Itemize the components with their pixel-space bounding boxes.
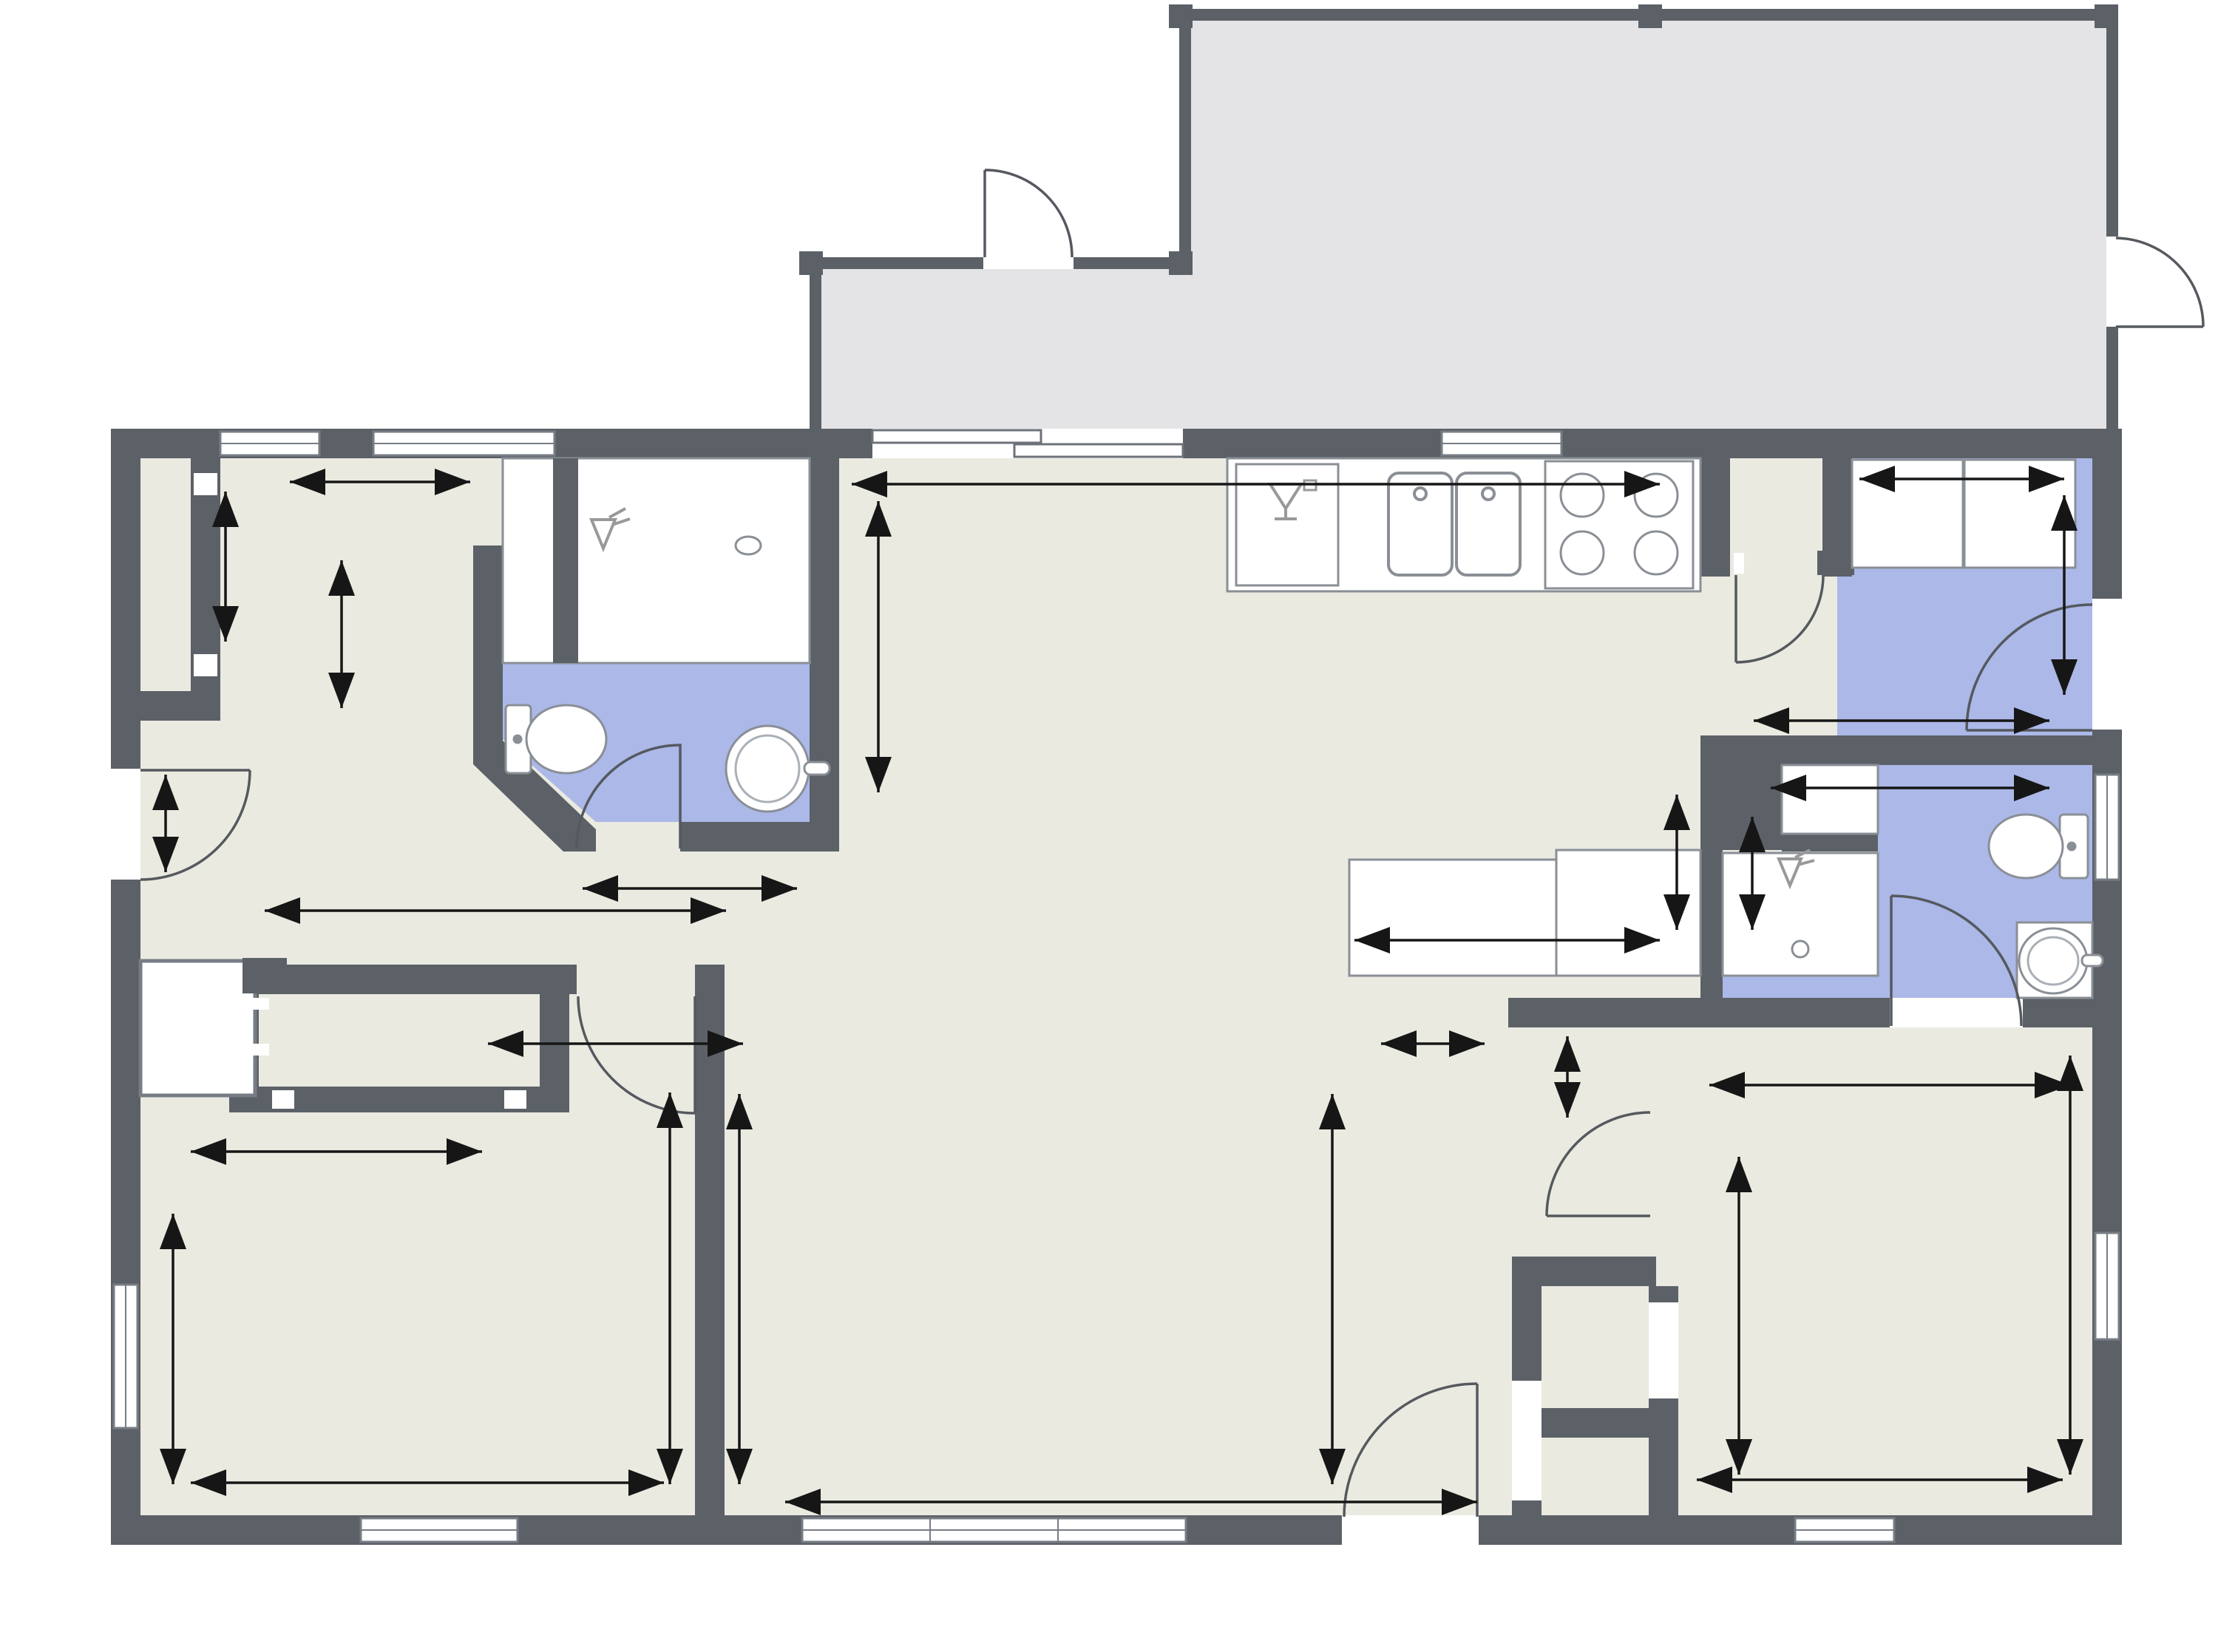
foyer-closet-opening [1512, 1381, 1542, 1500]
entry-door-opening [111, 769, 140, 880]
counter [1349, 860, 1556, 976]
toilet [1989, 815, 2088, 878]
bedroom2-closet-opening [1649, 1302, 1678, 1398]
porch-ext-door-opening [983, 257, 1074, 269]
porch-ext-door [985, 170, 1072, 257]
tub [503, 458, 810, 663]
dishwasher [1236, 464, 1338, 585]
sliding-door [872, 429, 1183, 458]
toilet [506, 705, 606, 773]
linen-closet [140, 961, 255, 1095]
screened-porch-area [799, 4, 2118, 429]
front-door-opening [1342, 1515, 1479, 1545]
vanity [1782, 765, 1878, 834]
washer-box [1852, 460, 1963, 568]
sink [2017, 922, 2103, 998]
stove [1545, 461, 1693, 588]
dryer-box [1964, 460, 2075, 568]
floor-plan-drawing [0, 0, 2218, 1652]
porch-screen-door-opening [2106, 237, 2118, 327]
bathroom2-door-opening [1890, 998, 2023, 1027]
laundry-door-opening [2092, 599, 2122, 730]
floor-plan [0, 0, 2218, 1652]
porch-screen-door [2116, 238, 2203, 327]
refrigerator-box [1556, 850, 1700, 976]
